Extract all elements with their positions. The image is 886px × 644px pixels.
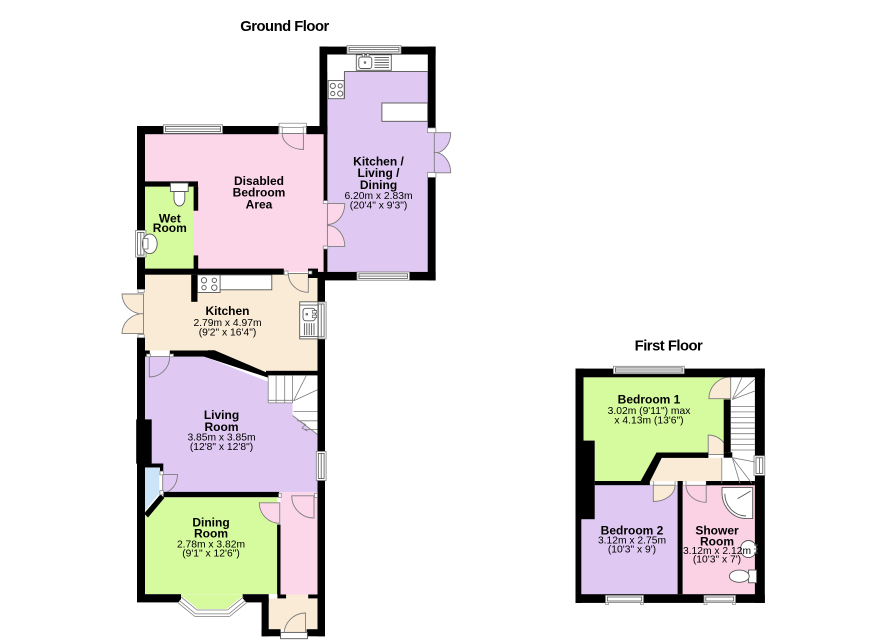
svg-text:Area: Area xyxy=(246,197,273,211)
svg-text:Ground Floor: Ground Floor xyxy=(240,19,329,35)
svg-text:Dining: Dining xyxy=(360,178,397,192)
svg-text:(20'4" x 9'3"): (20'4" x 9'3") xyxy=(350,200,408,211)
svg-text:First Floor: First Floor xyxy=(635,339,703,355)
svg-text:(10'3" x 7'): (10'3" x 7') xyxy=(693,555,741,566)
svg-text:Kitchen: Kitchen xyxy=(205,304,249,318)
svg-text:(9'1" x 12'6"): (9'1" x 12'6") xyxy=(182,549,240,560)
svg-text:(12'8" x 12'8"): (12'8" x 12'8") xyxy=(190,442,253,453)
svg-text:x 4.13m (13'6"): x 4.13m (13'6") xyxy=(614,415,683,426)
svg-text:Room: Room xyxy=(153,221,187,235)
svg-text:Bedroom 1: Bedroom 1 xyxy=(618,392,681,406)
svg-text:(9'2" x 16'4"): (9'2" x 16'4") xyxy=(199,327,257,338)
svg-text:(10'3" x 9'): (10'3" x 9') xyxy=(608,545,656,556)
